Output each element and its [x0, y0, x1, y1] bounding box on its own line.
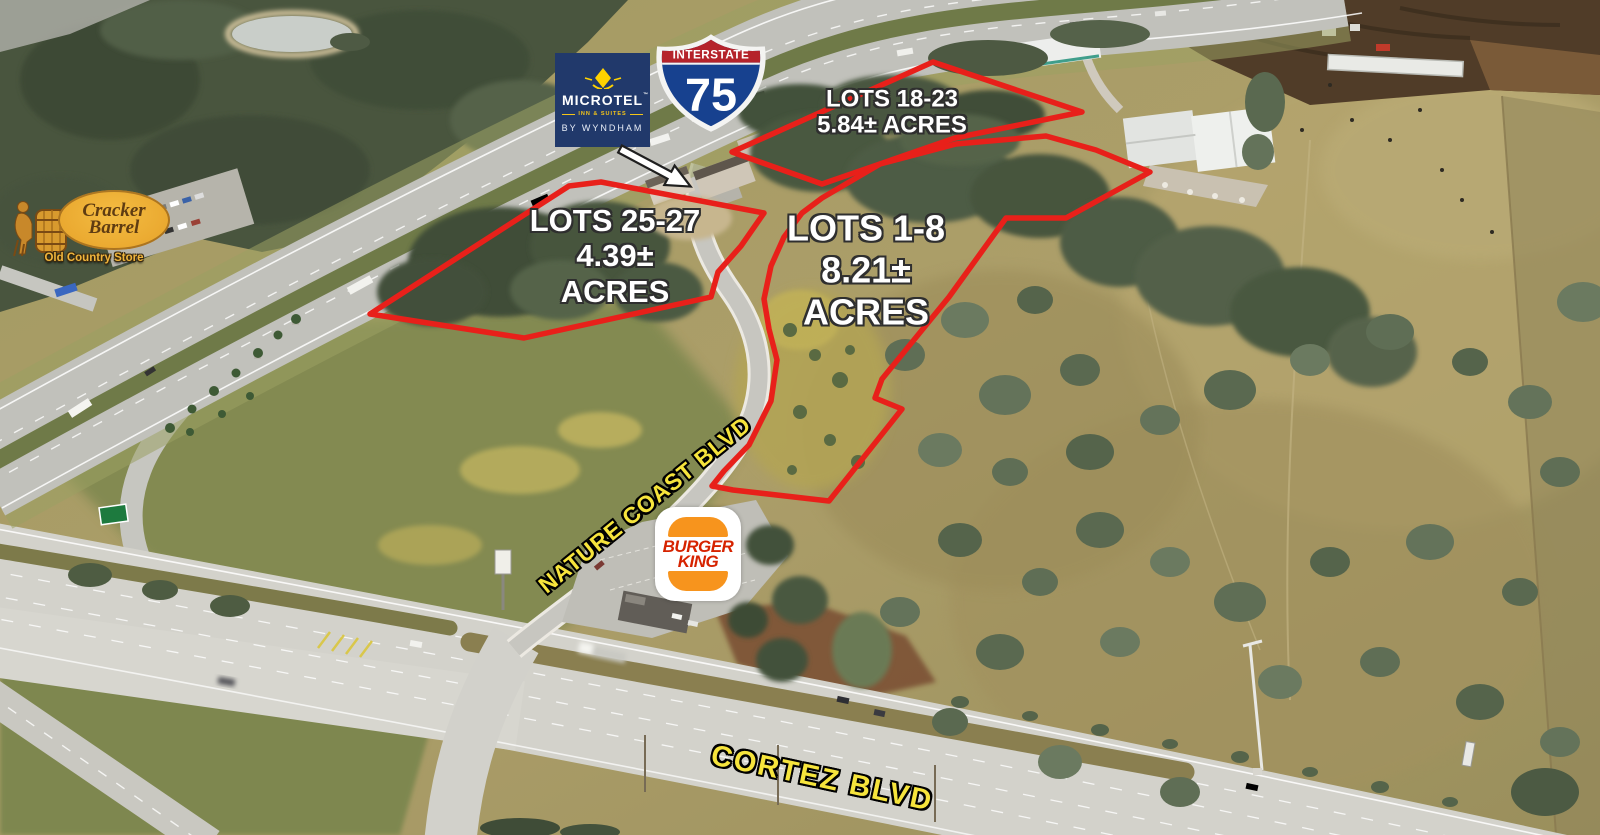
microtel-by-wyndham: BY WYNDHAM — [562, 123, 644, 133]
microtel-logo: MICROTEL™ INN & SUITES BY WYNDHAM — [555, 53, 650, 147]
lot-1-8-name: LOTS 1-8 — [787, 207, 945, 249]
cracker-barrel-oval: Cracker Barrel — [58, 190, 170, 250]
microtel-sun-icon — [583, 67, 623, 89]
aerial-photo-background — [0, 0, 1600, 835]
lot-1-8-acreage: 8.21± — [787, 249, 945, 291]
interstate-number: 75 — [685, 68, 737, 120]
interstate-75-shield: INTERSTATE 75 — [650, 30, 772, 136]
lot-18-23-acreage: 5.84± ACRES — [817, 113, 967, 139]
rule-left — [562, 114, 575, 115]
lot-18-23-name: LOTS 18-23 — [817, 87, 967, 113]
king-word: KING — [663, 554, 734, 569]
lot-1-8-unit: ACRES — [787, 291, 945, 333]
lot-label-1-8: LOTS 1-8 8.21± ACRES — [787, 207, 945, 332]
interstate-shield-icon: INTERSTATE 75 — [650, 30, 772, 136]
lot-25-27-name: LOTS 25-27 — [530, 203, 701, 238]
cracker-barrel-logo: Cracker Barrel Old Country Store — [8, 186, 183, 274]
highway-exit-sign — [99, 504, 128, 525]
burger-king-logo: BURGER KING — [655, 507, 741, 601]
cracker-barrel-tagline: Old Country Store — [26, 252, 162, 264]
microtel-suites-row: INN & SUITES — [562, 111, 642, 117]
burger-king-wordmark: BURGER KING — [663, 539, 734, 570]
lot-label-18-23: LOTS 18-23 5.84± ACRES — [817, 87, 967, 140]
lot-25-27-unit: ACRES — [530, 274, 701, 309]
bun-top-icon — [668, 517, 728, 537]
rule-right — [630, 114, 643, 115]
bun-bottom-icon — [668, 571, 728, 591]
aerial-lot-map: { "lot_labels": [ { "name": "LOTS 18-23"… — [0, 0, 1600, 835]
red-truck — [1376, 44, 1390, 51]
microtel-suites: INN & SUITES — [578, 111, 626, 117]
roadside-sign — [495, 550, 511, 574]
interstate-label: INTERSTATE — [673, 49, 750, 62]
barrel-word: Barrel — [89, 220, 140, 237]
lot-25-27-acreage: 4.39± — [530, 238, 701, 273]
lot-label-25-27: LOTS 25-27 4.39± ACRES — [530, 203, 701, 309]
microtel-tm: ™ — [643, 92, 649, 98]
pointer-arrow-icon — [612, 138, 712, 208]
microtel-name: MICROTEL™ — [562, 92, 643, 108]
